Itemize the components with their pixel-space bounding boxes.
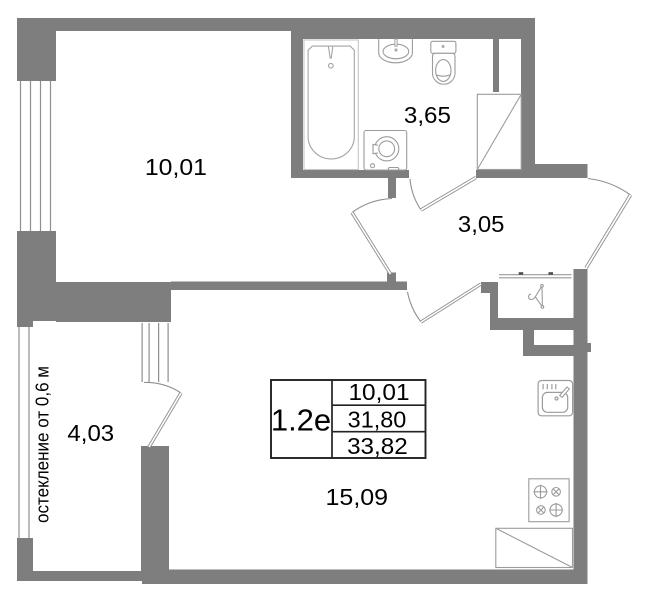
svg-text:10,01: 10,01: [349, 379, 410, 405]
svg-text:3,05: 3,05: [458, 211, 505, 237]
svg-text:1.2е: 1.2е: [271, 403, 331, 438]
svg-text:3,65: 3,65: [404, 102, 451, 128]
svg-text:33,82: 33,82: [347, 433, 408, 459]
svg-text:4,03: 4,03: [67, 420, 114, 446]
svg-text:остекление от 0,6 м: остекление от 0,6 м: [33, 366, 53, 523]
svg-text:10,01: 10,01: [145, 154, 207, 180]
svg-text:15,09: 15,09: [326, 484, 389, 510]
svg-text:31,80: 31,80: [348, 407, 407, 433]
